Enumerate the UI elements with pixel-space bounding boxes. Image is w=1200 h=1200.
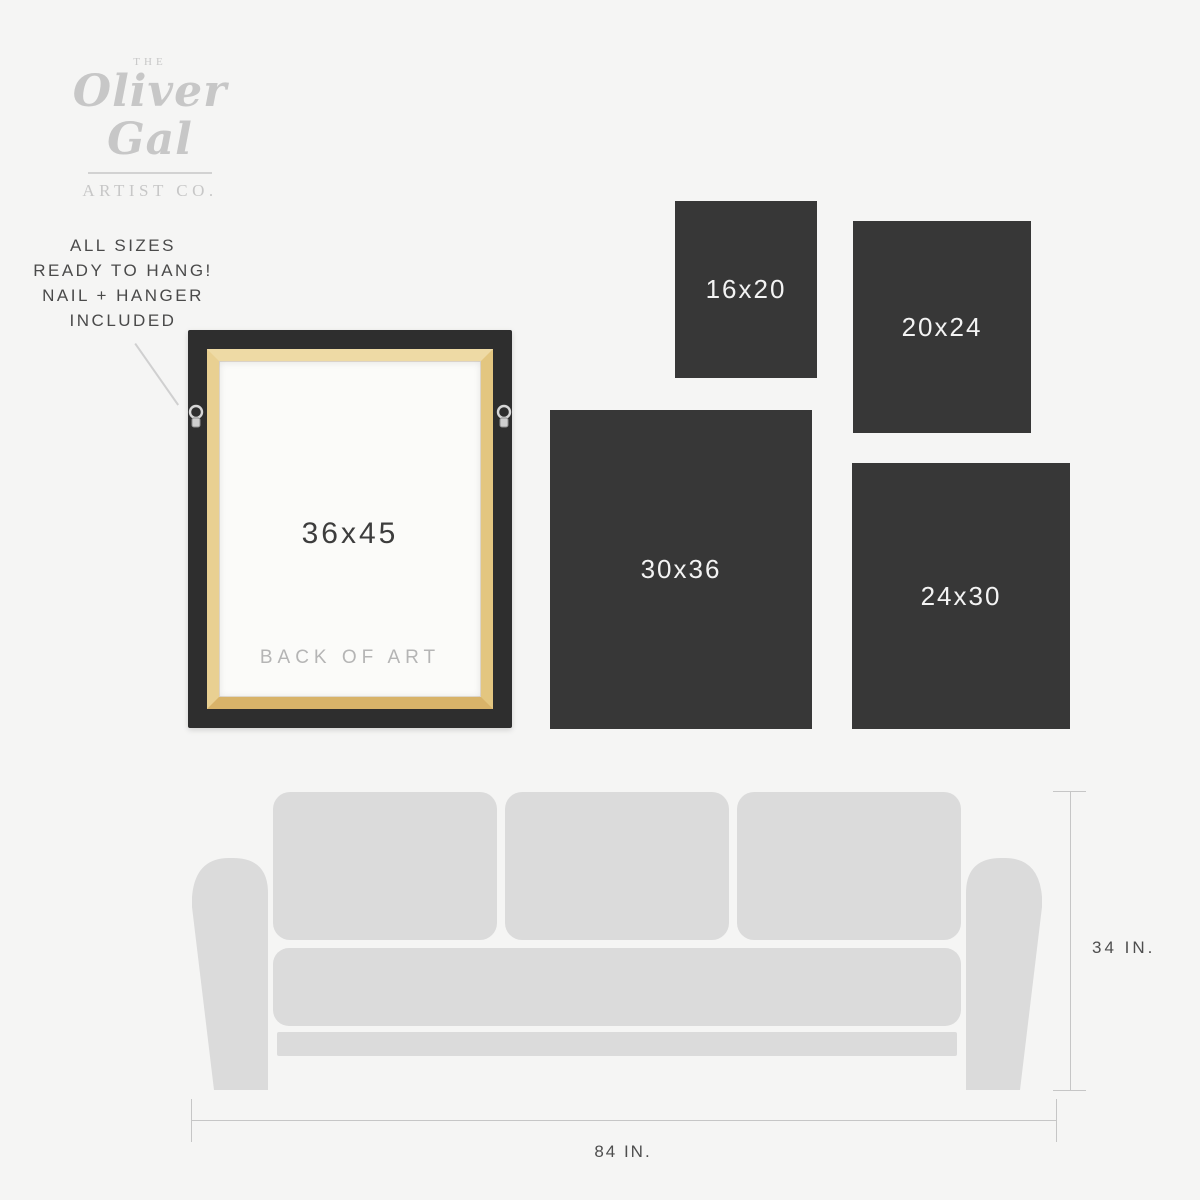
height-measure-cap-bottom	[1053, 1090, 1086, 1091]
size-guide-infographic: THE Oliver Gal ARTIST CO. ALL SIZES READ…	[0, 0, 1200, 1200]
sofa-back-cushion	[505, 792, 729, 940]
sofa-seat-cushion	[273, 948, 961, 1026]
sofa-back-cushion	[273, 792, 497, 940]
width-measure-line	[191, 1120, 1057, 1121]
height-measure-line	[1070, 791, 1071, 1090]
height-measure-cap-top	[1053, 791, 1086, 792]
sofa-armrest-left	[192, 858, 268, 1090]
size-tile-label: 24x30	[921, 581, 1002, 612]
size-tile-24x30: 24x30	[852, 463, 1070, 729]
width-measure-cap-left	[191, 1099, 192, 1142]
size-tile-label: 16x20	[706, 274, 787, 305]
frame-caption: BACK OF ART	[219, 647, 481, 669]
size-tile-20x24: 20x24	[853, 221, 1031, 433]
height-measure-label: 34 IN.	[1092, 938, 1155, 958]
width-measure-cap-right	[1056, 1099, 1057, 1142]
featured-art-frame: 36x45 BACK OF ART	[188, 330, 512, 728]
hang-note-line-3: NAIL + HANGER	[16, 283, 230, 308]
d-ring-hanger-icon	[187, 403, 205, 431]
size-tile-label: 20x24	[902, 312, 983, 343]
note-pointer-line	[134, 343, 179, 406]
width-measure-label: 84 IN.	[543, 1142, 703, 1162]
brand-name: Oliver Gal	[36, 68, 264, 165]
size-tile-label: 30x36	[641, 554, 722, 585]
sofa-illustration	[185, 788, 1060, 1092]
brand-divider	[88, 172, 212, 174]
hang-note: ALL SIZES READY TO HANG! NAIL + HANGER I…	[16, 233, 230, 333]
frame-size-label: 36x45	[219, 517, 481, 551]
brand-logo: THE Oliver Gal ARTIST CO.	[36, 56, 264, 201]
size-tile-16x20: 16x20	[675, 201, 817, 378]
sofa-base	[277, 1032, 957, 1056]
brand-subtitle: ARTIST CO.	[36, 181, 264, 201]
size-tile-30x36: 30x36	[550, 410, 812, 729]
d-ring-hanger-icon	[495, 403, 513, 431]
frame-stretcher-bars: 36x45 BACK OF ART	[207, 349, 493, 709]
sofa-back-cushion	[737, 792, 961, 940]
hang-note-line-1: ALL SIZES	[16, 233, 230, 258]
sofa-armrest-right	[966, 858, 1042, 1090]
hang-note-line-2: READY TO HANG!	[16, 258, 230, 283]
